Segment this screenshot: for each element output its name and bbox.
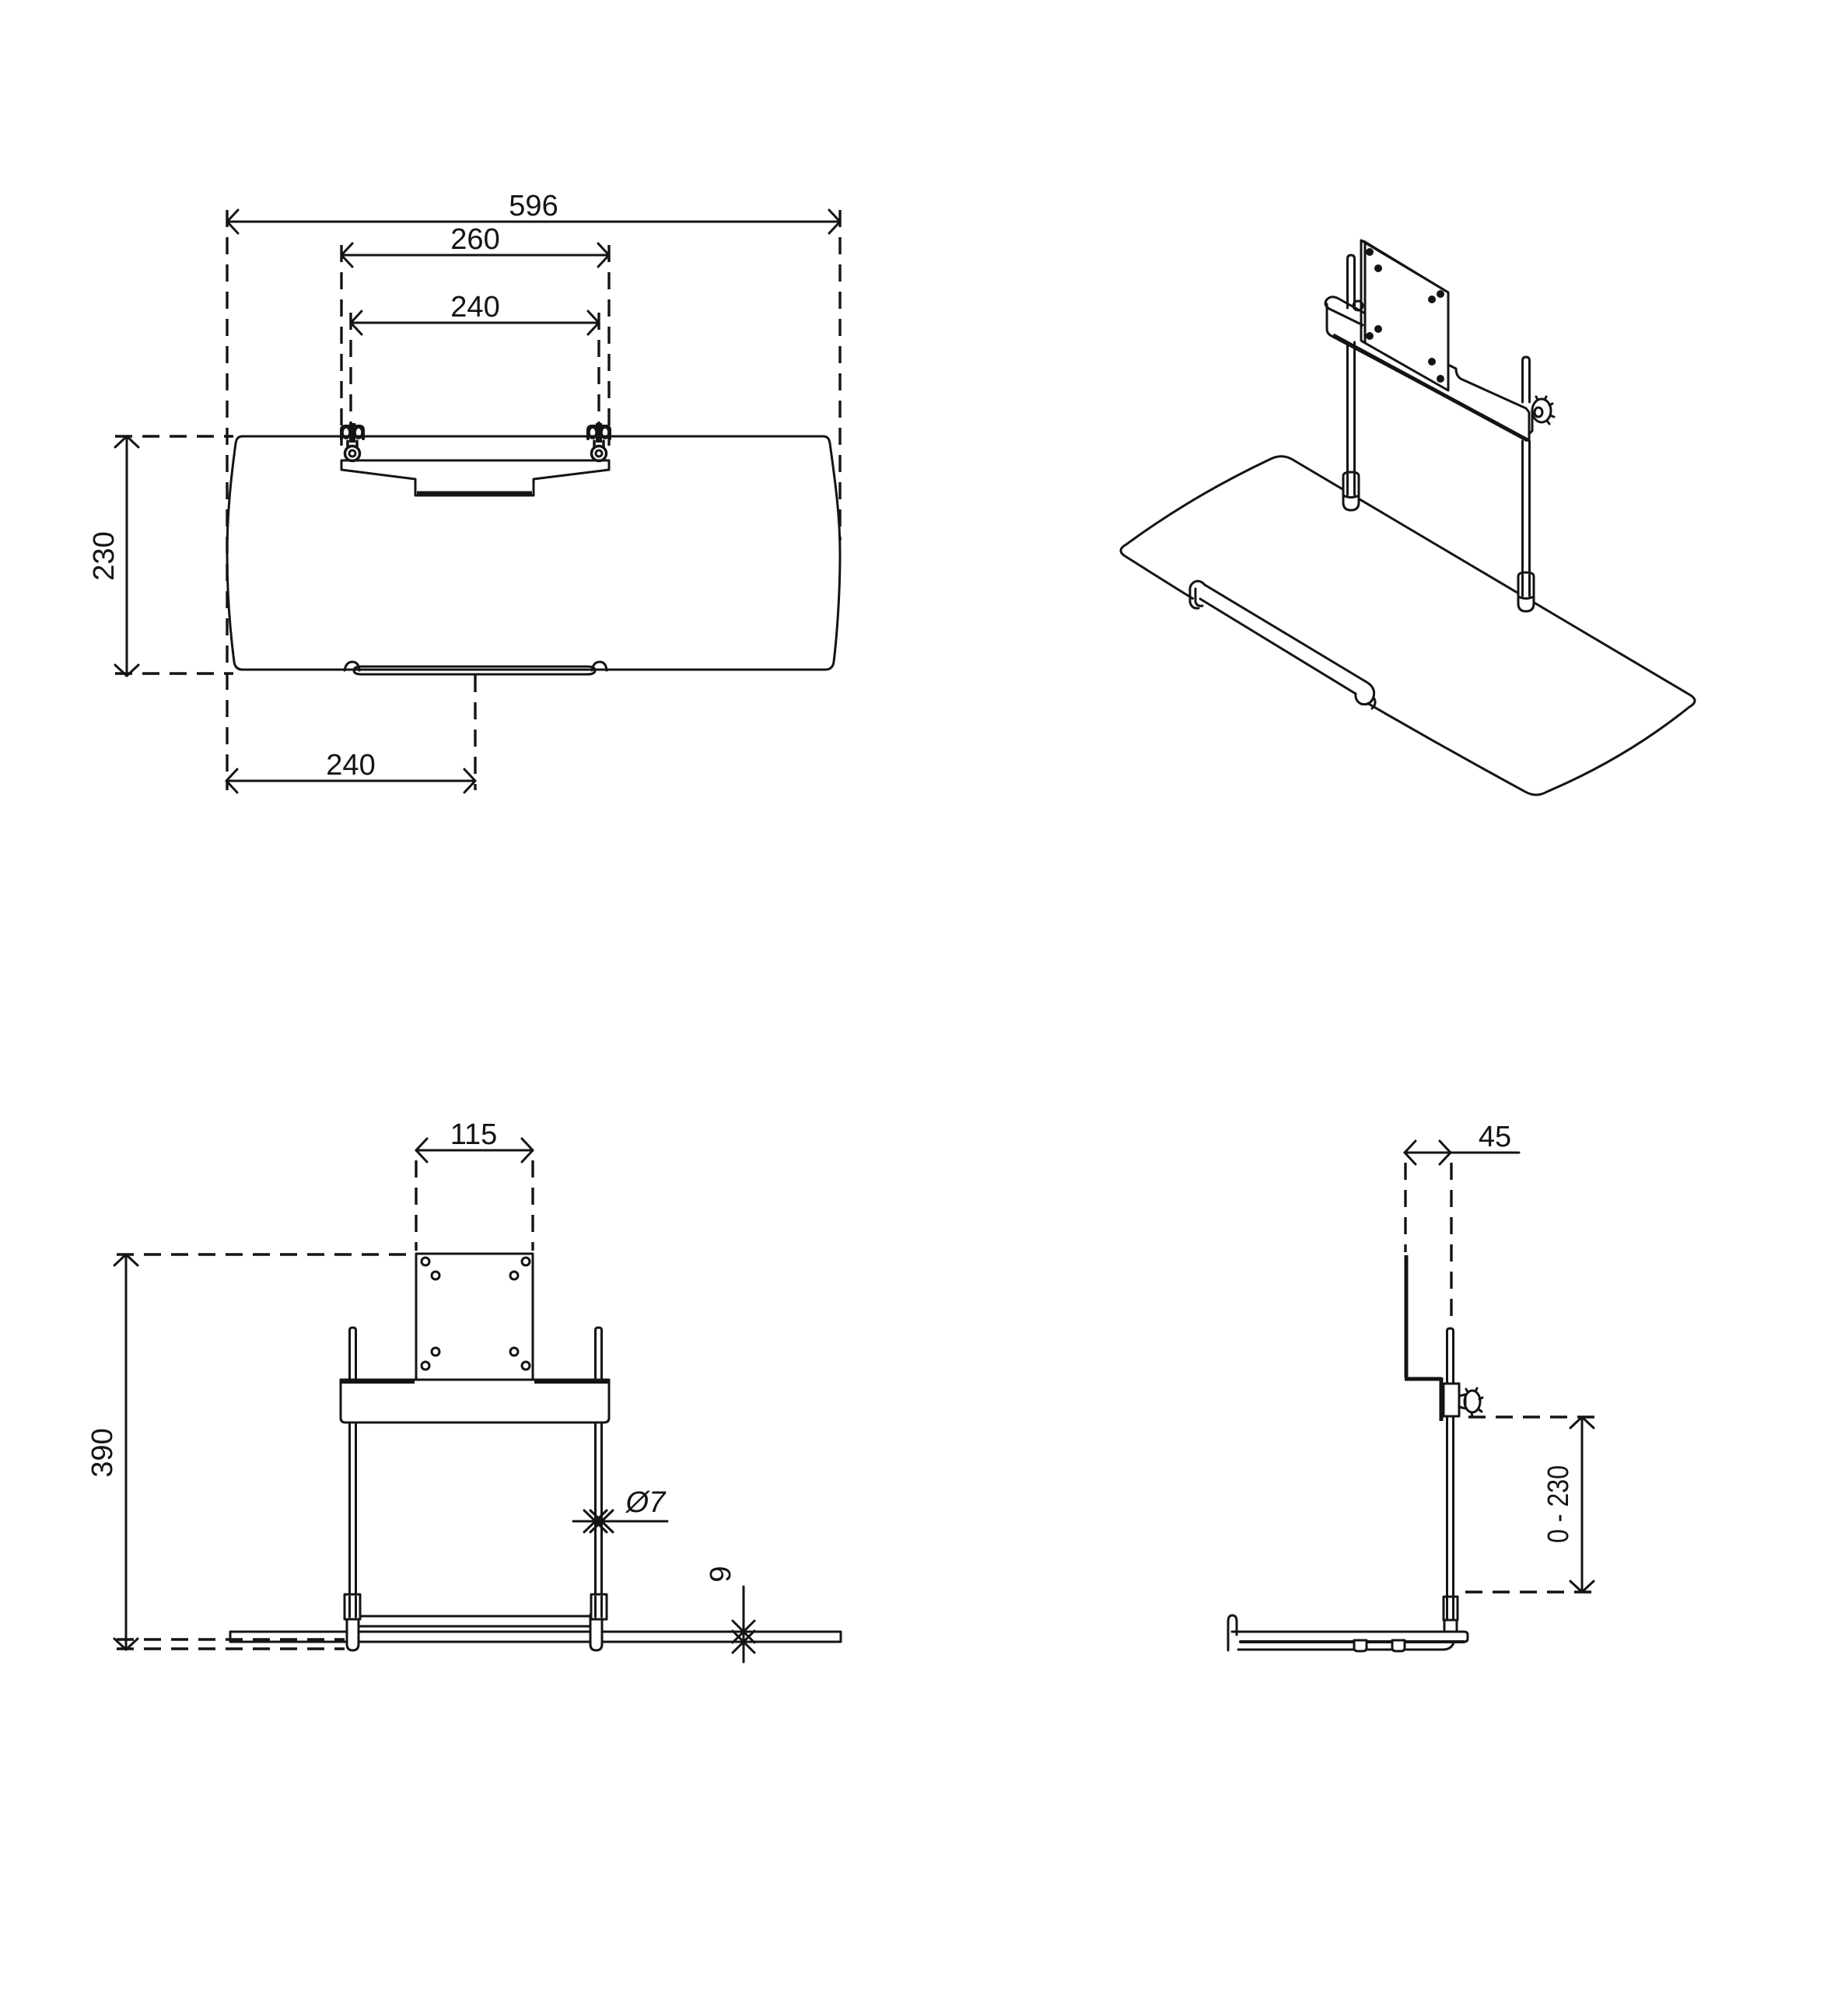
svg-text:240: 240 [326, 749, 375, 782]
svg-text:Ø7: Ø7 [625, 1486, 667, 1519]
svg-text:240: 240 [450, 291, 499, 324]
svg-text:115: 115 [450, 1118, 498, 1151]
svg-text:45: 45 [1479, 1121, 1511, 1153]
svg-text:230: 230 [88, 531, 121, 580]
svg-text:0 - 230: 0 - 230 [1542, 1465, 1575, 1543]
svg-text:390: 390 [86, 1428, 119, 1477]
svg-text:260: 260 [450, 223, 499, 256]
svg-text:9: 9 [705, 1566, 737, 1582]
svg-text:596: 596 [509, 190, 558, 222]
